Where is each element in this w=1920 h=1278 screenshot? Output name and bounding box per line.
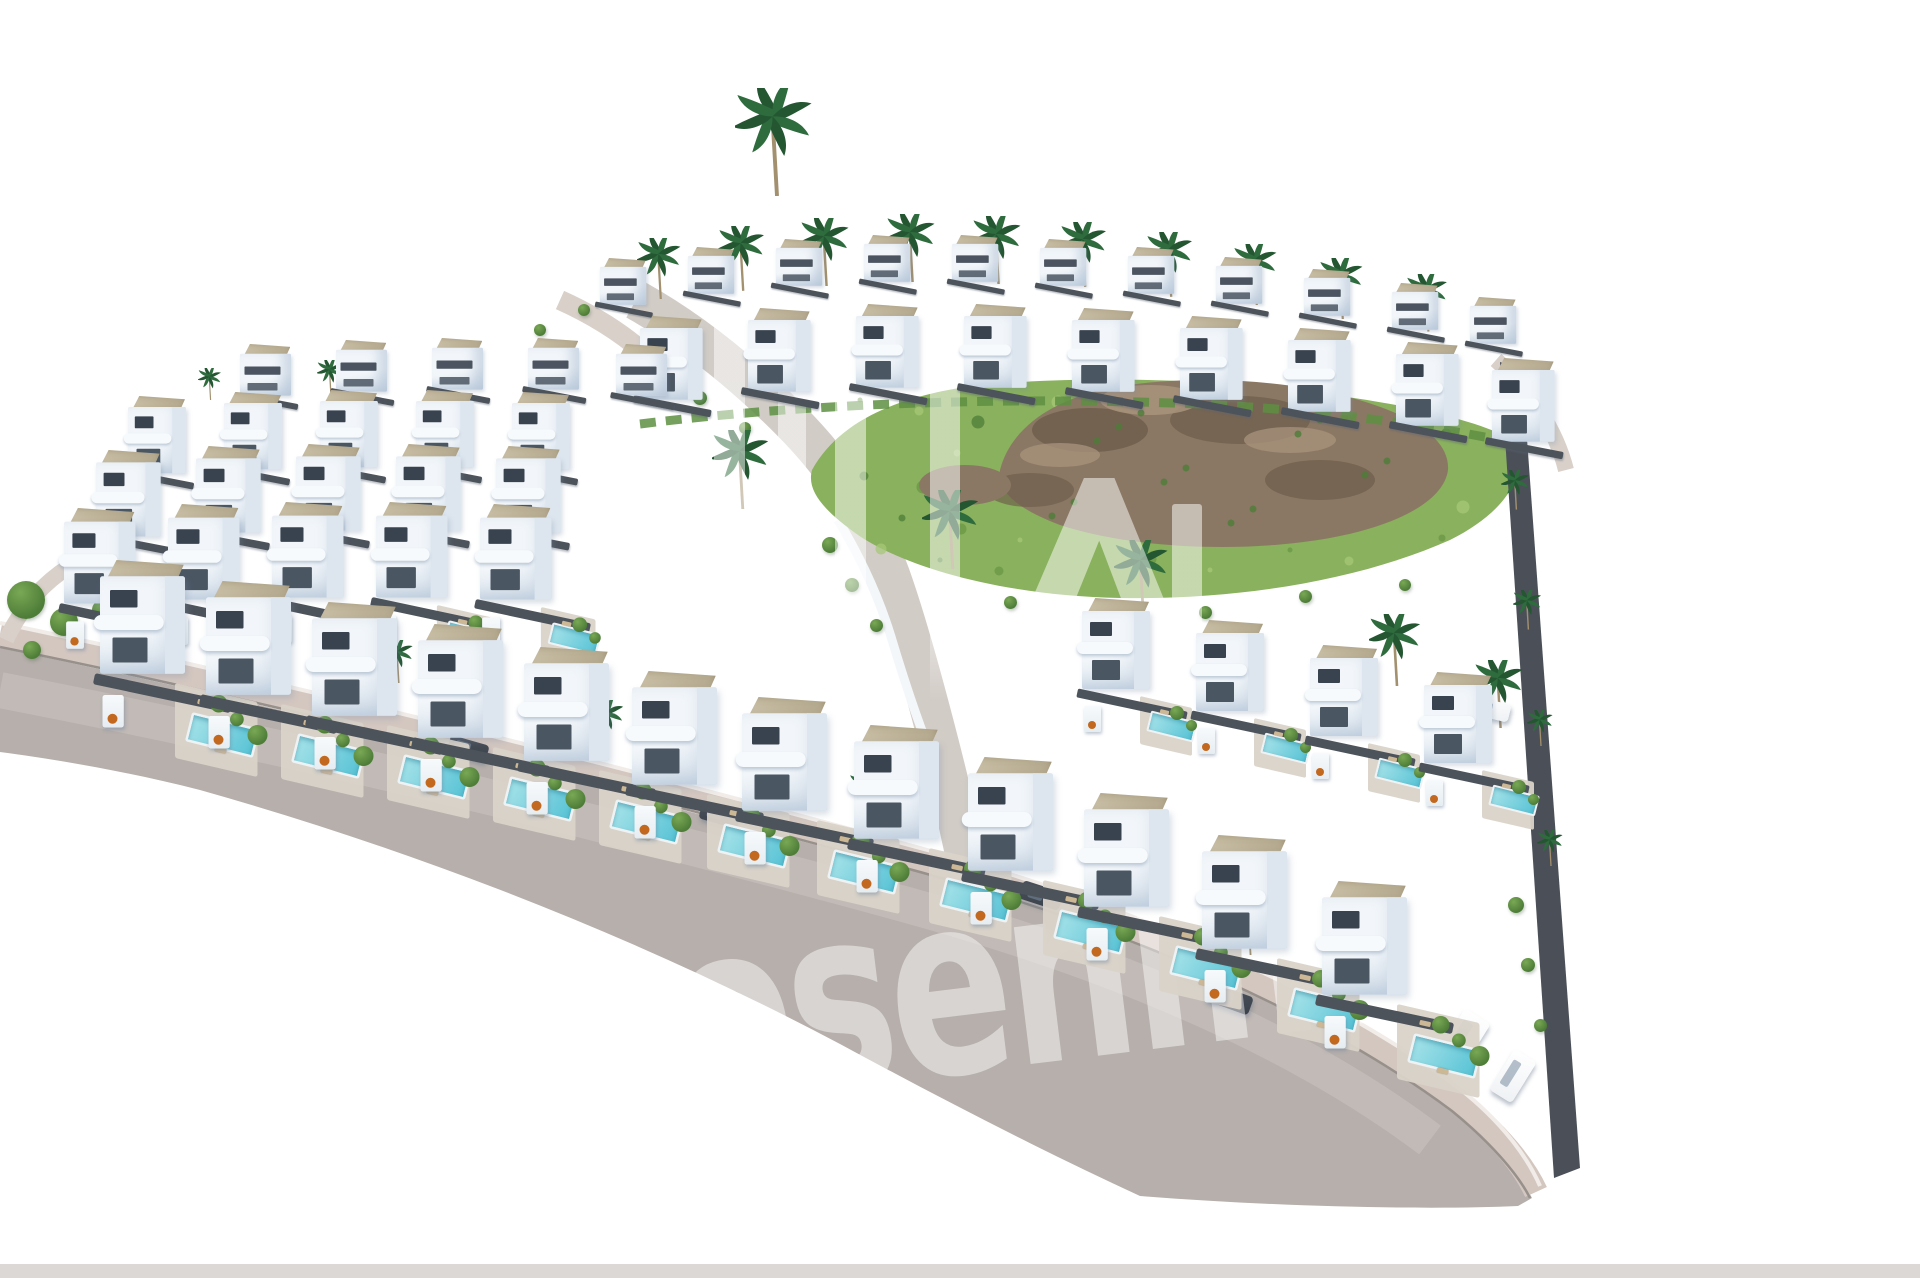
villa-window-band	[536, 377, 566, 385]
villa-upper-window	[304, 467, 325, 480]
rock-tuft	[1094, 438, 1101, 445]
villa-curved-balcony	[959, 344, 1011, 355]
garden-shrub	[230, 713, 244, 727]
villa-side-face	[807, 713, 827, 811]
garden-shrub	[336, 734, 350, 748]
villa-curved-balcony	[491, 488, 544, 499]
villa-side-face	[445, 456, 460, 530]
villa-side-face	[345, 456, 360, 530]
villa-ground-window	[1335, 959, 1370, 984]
villa-curved-balcony	[962, 812, 1032, 827]
villa-upper-window	[971, 326, 991, 339]
villa-curved-balcony	[1305, 689, 1361, 701]
villa-window-band	[607, 293, 634, 300]
villa-side-face	[364, 401, 378, 467]
villa-upper-window	[1403, 364, 1423, 377]
villa-window-band	[437, 361, 473, 369]
bottom-strip	[0, 1264, 1920, 1278]
landscape-shrub-11	[822, 537, 838, 553]
villa-window-band	[245, 367, 281, 375]
landscape-shrub-16	[1199, 606, 1212, 619]
rock-tuft	[1138, 410, 1145, 417]
villa-upper-window	[1094, 823, 1122, 841]
landscape-shrub-19	[1508, 897, 1524, 913]
villa-curved-balcony	[1175, 356, 1227, 367]
landscape-shrub-21	[1534, 1019, 1547, 1032]
render-canvas: rosenmil	[0, 0, 1920, 1278]
villa-side-face	[165, 576, 185, 674]
villa-curved-balcony	[1191, 664, 1247, 676]
entrance-gate-pillar	[421, 759, 442, 792]
villa-upper-window	[110, 590, 138, 608]
garden-shrub	[1170, 706, 1184, 720]
villa-window-band	[695, 282, 722, 289]
villa-window-band	[624, 383, 654, 391]
villa-ground-window	[325, 680, 360, 705]
palm-tree-1	[735, 88, 816, 196]
villa-side-face	[327, 516, 344, 598]
rock-light-3	[1020, 443, 1100, 467]
villa-window-band	[604, 278, 637, 285]
villa-curved-balcony	[391, 486, 444, 497]
villa-ground-window	[113, 638, 148, 663]
palm-tree-13	[198, 368, 222, 400]
rock-tuft	[1250, 506, 1257, 513]
villa-curved-balcony	[743, 348, 795, 359]
villa-curved-balcony	[1391, 382, 1443, 393]
garden-tree	[354, 746, 374, 766]
villa-window-band	[783, 274, 810, 281]
hill-bush	[1018, 538, 1023, 543]
palm-tree-15	[922, 490, 981, 569]
villa-side-face	[1362, 658, 1378, 736]
villa-window-band	[1223, 292, 1250, 299]
garden-tree	[1470, 1046, 1490, 1066]
villa-window-band	[1474, 317, 1507, 324]
landscape-shrub-18	[1399, 579, 1411, 591]
villa-upper-window	[1295, 350, 1315, 363]
villa-ground-window	[1215, 913, 1250, 938]
garden-tree	[460, 767, 480, 787]
villa-ground-window	[757, 365, 783, 383]
villa-curved-balcony	[412, 427, 460, 437]
villa-side-face	[1012, 316, 1027, 388]
garden-shrub	[572, 617, 587, 632]
villa-curved-balcony	[371, 548, 430, 561]
villa-side-face	[688, 328, 703, 400]
entrance-gate-pillar	[635, 806, 656, 839]
villa-upper-window	[534, 677, 562, 695]
villa-upper-window	[204, 469, 225, 482]
villa-upper-window	[384, 527, 407, 542]
entrance-gate-pillar	[1087, 928, 1108, 961]
villa-window-band	[533, 361, 569, 369]
rock-tuft	[1049, 513, 1056, 520]
villa-curved-balcony	[200, 636, 270, 651]
palm-tree-14	[712, 430, 771, 509]
villa-curved-balcony	[94, 615, 164, 630]
villa-window-band	[1132, 267, 1165, 274]
rock-tuft	[1228, 520, 1235, 527]
villa-window-band	[440, 377, 470, 385]
villa-ground-window	[981, 835, 1016, 860]
landscape-shrub-6	[578, 304, 590, 316]
villa-upper-window	[864, 755, 892, 773]
villa-side-face	[245, 458, 260, 532]
palm-tree-24	[1501, 470, 1531, 510]
entrance-gate-pillar	[857, 860, 878, 893]
entrance-gate-pillar	[1426, 780, 1443, 806]
hill-bush	[899, 515, 906, 522]
villa-window-band	[1311, 304, 1338, 311]
villa-curved-balcony	[736, 752, 806, 767]
villa-upper-window	[519, 412, 538, 424]
villa-curved-balcony	[1067, 348, 1119, 359]
villa-upper-window	[1090, 622, 1112, 636]
landscape-shrub-14	[1004, 596, 1017, 609]
villa-upper-window	[752, 727, 780, 745]
villa-curved-balcony	[1196, 890, 1266, 905]
entrance-gate-pillar	[103, 695, 124, 728]
villa-ground-window	[865, 361, 891, 379]
entrance-gate-pillar	[315, 737, 336, 770]
garden-tree	[566, 789, 586, 809]
garden-shrub	[1452, 1034, 1466, 1048]
villa-upper-window	[322, 632, 350, 650]
villa-ground-window	[1405, 399, 1431, 417]
villa-side-face	[1267, 851, 1287, 949]
villa-side-face	[1248, 633, 1264, 711]
villa-side-face	[1228, 328, 1243, 400]
entrance-gate-pillar	[1312, 753, 1329, 779]
villa-window-band	[1044, 259, 1077, 266]
garden-shrub	[589, 632, 601, 644]
villa-window-band	[1396, 303, 1429, 310]
villa-upper-window	[423, 410, 442, 422]
villa-ground-window	[1434, 734, 1462, 754]
villa-curved-balcony	[267, 548, 326, 561]
villa-window-band	[1477, 332, 1504, 339]
villa-curved-balcony	[518, 702, 588, 717]
villa-ground-window	[867, 803, 902, 828]
hill-bush	[1439, 535, 1446, 542]
villa-upper-window	[642, 701, 670, 719]
villa-curved-balcony	[851, 344, 903, 355]
villa-window-band	[621, 367, 657, 375]
villa-curved-balcony	[412, 679, 482, 694]
villa-upper-window	[135, 416, 154, 428]
hill-bush	[1288, 548, 1293, 553]
villa-window-band	[871, 270, 898, 277]
entrance-gate-pillar	[1205, 970, 1226, 1003]
villa-curved-balcony	[1077, 642, 1133, 654]
villa-curved-balcony	[291, 486, 344, 497]
palm-tree-26	[1527, 710, 1554, 746]
villa-ground-window	[491, 569, 520, 590]
villa-side-face	[1540, 370, 1555, 442]
rock-tuft	[1362, 472, 1369, 479]
villa-side-face	[1387, 897, 1407, 995]
villa-window-band	[248, 383, 278, 391]
villa-side-face	[1134, 611, 1150, 689]
villa-curved-balcony	[163, 550, 222, 563]
villa-curved-balcony	[1316, 936, 1386, 951]
villa-upper-window	[1204, 644, 1226, 658]
villa-ground-window	[1501, 415, 1527, 433]
villa-side-face	[589, 663, 609, 761]
villa-side-face	[1120, 320, 1135, 392]
hill-bush	[1457, 501, 1470, 514]
villa-upper-window	[1499, 380, 1519, 393]
villa-upper-window	[1332, 911, 1360, 929]
villa-curved-balcony	[316, 427, 364, 437]
villa-curved-balcony	[475, 550, 534, 563]
villa-window-band	[959, 270, 986, 277]
villa-ground-window	[1081, 365, 1107, 383]
villa-upper-window	[863, 326, 883, 339]
villa-upper-window	[504, 469, 525, 482]
landscape-shrub-12	[845, 578, 859, 592]
landscape-shrub-20	[1521, 958, 1535, 972]
villa-window-band	[1399, 318, 1426, 325]
villa-curved-balcony	[191, 488, 244, 499]
villa-side-face	[904, 316, 919, 388]
villa-side-face	[796, 320, 811, 392]
villa-side-face	[1336, 340, 1351, 412]
villa-curved-balcony	[1283, 368, 1335, 379]
hill-bush	[860, 472, 869, 481]
rock-tuft	[1183, 465, 1190, 472]
villa-window-band	[1047, 274, 1074, 281]
villa-window-band	[780, 259, 813, 266]
villa-curved-balcony	[220, 429, 268, 439]
villa-upper-window	[1212, 865, 1240, 883]
hill-bush	[1208, 568, 1213, 573]
villa-upper-window	[1432, 696, 1454, 710]
villa-side-face	[271, 597, 291, 695]
garden-shrub	[1186, 720, 1197, 731]
entrance-gate-pillar	[1084, 706, 1101, 732]
villa-ground-window	[1320, 707, 1348, 727]
villa-ground-window	[1097, 871, 1132, 896]
villa-ground-window	[645, 749, 680, 774]
villa-window-band	[868, 255, 901, 262]
villa-side-face	[377, 618, 397, 716]
rock-shadow-3	[1265, 460, 1375, 500]
villa-upper-window	[1187, 338, 1207, 351]
villa-curved-balcony	[1078, 848, 1148, 863]
villa-side-face	[1149, 809, 1169, 907]
villa-side-face	[172, 407, 186, 473]
rock-tuft	[1295, 431, 1302, 438]
villa-upper-window	[104, 473, 125, 486]
landscape-shrub-4	[23, 641, 41, 659]
villa-window-band	[956, 255, 989, 262]
villa-curved-balcony	[1487, 398, 1539, 409]
villa-ground-window	[431, 702, 466, 727]
garden-tree	[672, 812, 692, 832]
villa-curved-balcony	[848, 780, 918, 795]
garden-shrub	[1512, 780, 1526, 794]
villa-side-face	[268, 403, 282, 469]
entrance-gate-pillar	[971, 892, 992, 925]
rock-tuft	[1116, 424, 1123, 431]
garden-tree	[890, 862, 910, 882]
garden-tree	[780, 836, 800, 856]
villa-side-face	[1444, 354, 1459, 426]
villa-upper-window	[280, 527, 303, 542]
villa-window-band	[1135, 282, 1162, 289]
hill-bush	[1345, 557, 1354, 566]
rock-tuft	[1384, 458, 1391, 465]
rock-light-2	[1244, 427, 1336, 453]
landscape-shrub-1	[7, 581, 45, 619]
villa-curved-balcony	[306, 657, 376, 672]
landscape-shrub-17	[1299, 590, 1312, 603]
villa-upper-window	[428, 654, 456, 672]
villa-ground-window	[1297, 385, 1323, 403]
villa-upper-window	[1318, 669, 1340, 683]
palm-tree-27	[1537, 830, 1564, 866]
entrance-gate-pillar	[745, 832, 766, 865]
villa-upper-window	[1079, 330, 1099, 343]
villa-window-band	[1220, 277, 1253, 284]
villa-side-face	[460, 401, 474, 467]
villa-curved-balcony	[124, 433, 172, 443]
entrance-gate-pillar	[209, 716, 230, 749]
villa-upper-window	[978, 787, 1006, 805]
villa-side-face	[1033, 773, 1053, 871]
villa-curved-balcony	[59, 554, 118, 567]
villa-ground-window	[1092, 660, 1120, 680]
villa-ground-window	[755, 775, 790, 800]
villa-side-face	[431, 516, 448, 598]
garden-shrub	[1398, 753, 1412, 767]
hill-bush	[915, 407, 924, 416]
villa-side-face	[535, 518, 552, 600]
villa-upper-window	[404, 467, 425, 480]
villa-side-face	[483, 640, 503, 738]
entrance-gate-pillar	[66, 621, 84, 648]
garden-tree	[248, 725, 268, 745]
garden-shrub	[1432, 1016, 1450, 1034]
villa-side-face	[1476, 685, 1492, 763]
hill-bush	[995, 567, 1004, 576]
villa-window-band	[1308, 289, 1341, 296]
villa-ground-window	[1189, 373, 1215, 391]
villa-upper-window	[488, 529, 511, 544]
garden-shrub	[1528, 794, 1539, 805]
villa-ground-window	[1206, 682, 1234, 702]
hill-bush	[876, 544, 887, 555]
hill-bush	[954, 450, 961, 457]
villa-window-band	[341, 363, 377, 371]
villa-upper-window	[231, 412, 250, 424]
villa-upper-window	[72, 533, 95, 548]
villa-upper-window	[755, 330, 775, 343]
villa-ground-window	[283, 567, 312, 588]
villa-ground-window	[973, 361, 999, 379]
villa-upper-window	[327, 410, 346, 422]
landscape-shrub-7	[534, 324, 546, 336]
villa-ground-window	[219, 659, 254, 684]
villa-side-face	[919, 741, 939, 839]
hill-bush	[972, 416, 985, 429]
villa-window-band	[344, 379, 374, 387]
villa-curved-balcony	[508, 429, 556, 439]
villa-upper-window	[176, 529, 199, 544]
villa-ground-window	[387, 567, 416, 588]
villa-window-band	[692, 267, 725, 274]
entrance-gate-pillar	[1325, 1016, 1346, 1049]
rock-tuft	[1161, 479, 1168, 486]
rock-tuft	[1071, 499, 1078, 506]
palm-tree-25	[1513, 590, 1543, 630]
landscape-shrub-13	[870, 619, 883, 632]
villa-ground-window	[537, 725, 572, 750]
villa-upper-window	[216, 611, 244, 629]
villa-side-face	[145, 462, 160, 536]
villa-side-face	[697, 687, 717, 785]
villa-curved-balcony	[626, 726, 696, 741]
villa-curved-balcony	[91, 492, 144, 503]
garden-shrub	[1284, 728, 1298, 742]
villa-curved-balcony	[1419, 716, 1475, 728]
entrance-gate-pillar	[1198, 728, 1215, 754]
entrance-gate-pillar	[527, 782, 548, 815]
